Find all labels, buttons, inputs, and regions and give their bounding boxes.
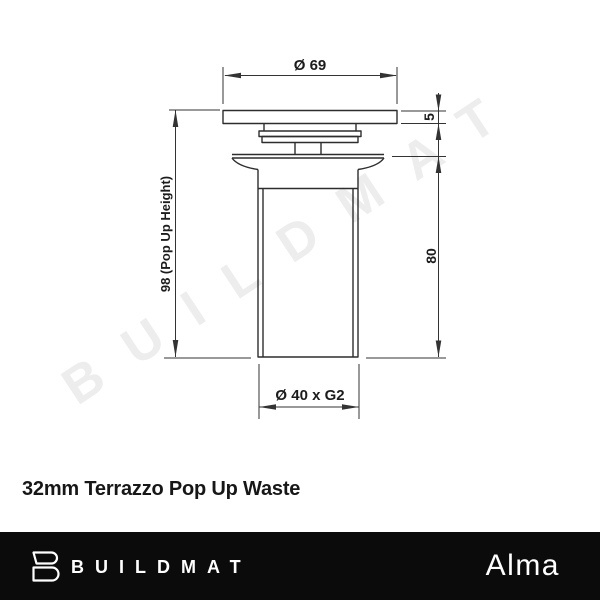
arrowhead xyxy=(342,404,359,410)
body-inner-walls xyxy=(263,189,353,358)
arrowhead xyxy=(436,124,442,141)
flange-top xyxy=(232,155,384,159)
ext-lines-left xyxy=(164,110,251,358)
brand-lockup: BUILDMAT xyxy=(30,549,252,583)
arrowhead xyxy=(224,73,241,79)
ext-lines-right xyxy=(366,111,446,358)
arrowhead xyxy=(173,110,179,127)
brand-name: BUILDMAT xyxy=(71,556,252,576)
product-spec-page: BUILDMAT xyxy=(0,0,600,600)
washer-lower xyxy=(262,137,358,143)
dim-label-plate-thickness: 5 xyxy=(421,113,437,121)
stem xyxy=(295,143,321,155)
neck xyxy=(264,124,356,132)
arrowhead xyxy=(380,73,397,79)
arrowhead xyxy=(436,341,442,358)
body-outline xyxy=(258,170,358,358)
arrowhead xyxy=(259,404,276,410)
top-plate xyxy=(223,111,397,124)
arrowhead xyxy=(173,340,179,357)
footer-bar: BUILDMAT Alma xyxy=(0,532,600,600)
dim-label-top-diameter: Ø 69 xyxy=(294,57,327,74)
dim-label-thread: Ø 40 x G2 xyxy=(275,387,344,404)
flange-slant-left xyxy=(232,158,258,170)
arrowhead xyxy=(436,157,442,174)
technical-drawing: Ø 69 5 98 (Pop Up Height) 80 Ø 40 x G2 xyxy=(0,0,600,530)
flange-slant-right xyxy=(358,158,384,170)
washer-upper xyxy=(259,131,361,137)
dim-label-body-height: 80 xyxy=(423,248,439,264)
buildmat-logo-icon xyxy=(30,549,60,583)
product-title: 32mm Terrazzo Pop Up Waste xyxy=(22,478,300,501)
product-outline xyxy=(223,111,397,358)
dimension-lines xyxy=(164,67,446,419)
arrowhead xyxy=(436,95,442,112)
series-name: Alma xyxy=(486,551,560,581)
dim-label-popup-height: 98 (Pop Up Height) xyxy=(158,176,173,292)
